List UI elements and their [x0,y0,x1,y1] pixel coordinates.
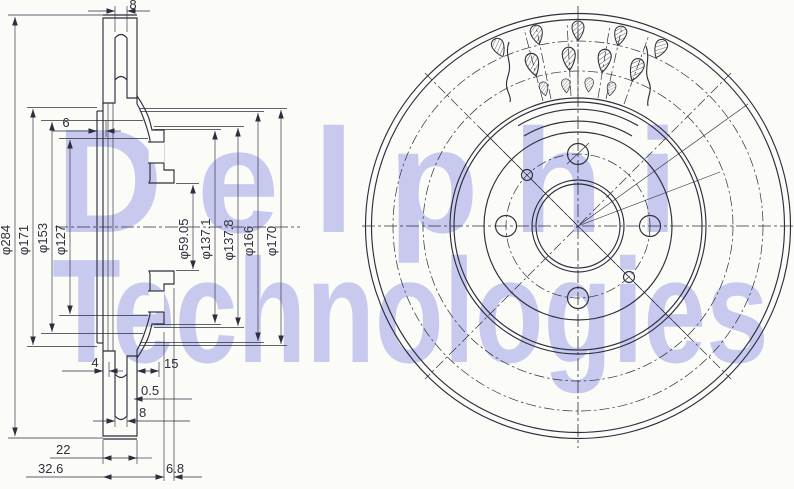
dim-thickness-22: 22 [56,442,70,457]
dim-pilot-6-8: 6.8 [166,461,184,476]
brake-disc-technical-drawing: Delphi Technologies [0,0,794,489]
dim-phi-127: φ127 [53,225,68,255]
dim-step-0-5: 0.5 [141,383,159,398]
dim-phi-170: φ170 [264,226,279,256]
dim-vent-width-bottom: 8 [139,405,146,420]
dim-plate-4: 4 [91,355,98,370]
dim-phi-59-05: φ59.05 [176,219,191,260]
dim-phi-137-1: φ137.1 [198,219,213,260]
dim-phi-171: φ171 [16,225,31,255]
dim-phi-166: φ166 [241,226,256,256]
dim-plate-6: 6 [62,115,69,130]
dim-phi-284: φ284 [0,225,13,255]
dim-phi-153: φ153 [35,223,50,253]
dim-depth-15: 15 [164,356,178,371]
dim-height-32-6: 32.6 [38,461,63,476]
dim-vent-width-top: 8 [129,0,136,12]
dim-phi-137-8: φ137.8 [221,220,236,261]
